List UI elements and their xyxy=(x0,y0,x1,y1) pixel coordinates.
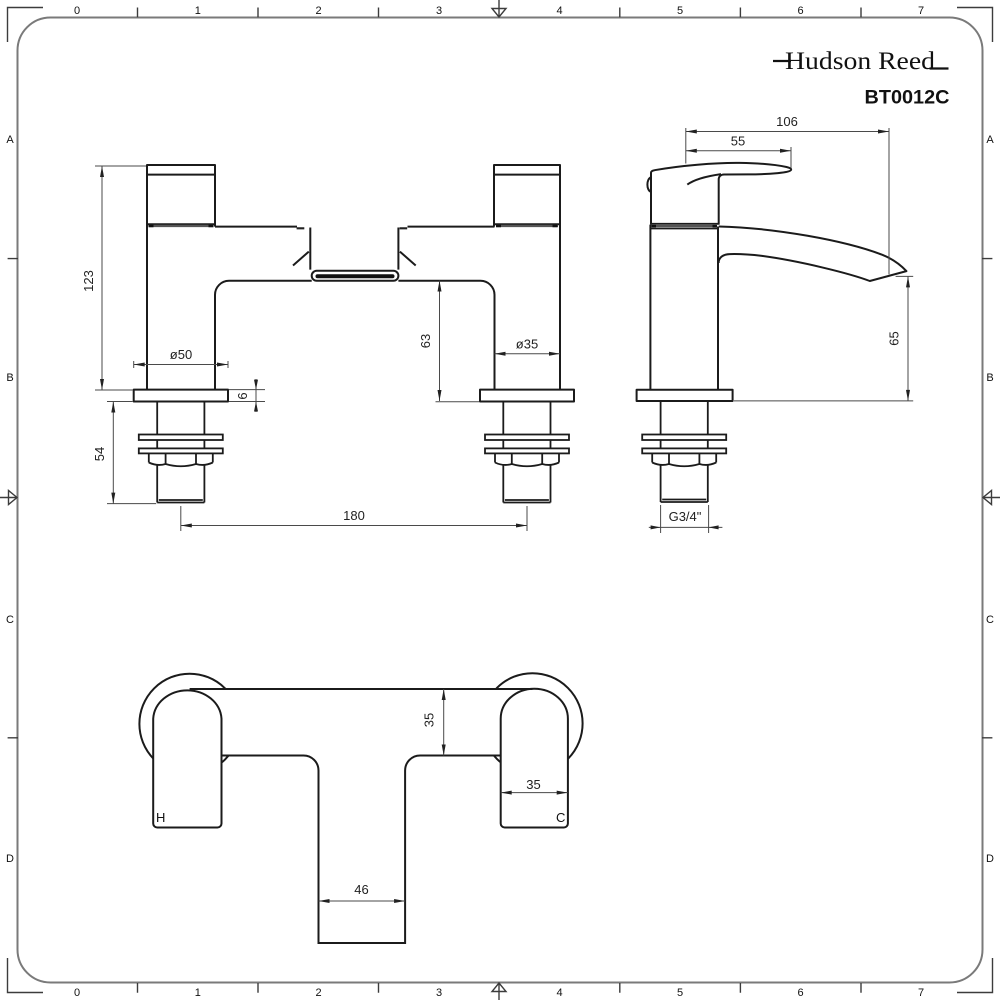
svg-text:123: 123 xyxy=(81,270,96,292)
svg-text:2: 2 xyxy=(315,5,321,17)
svg-text:C: C xyxy=(556,810,565,825)
svg-text:A: A xyxy=(6,134,14,146)
svg-text:B: B xyxy=(6,372,13,384)
svg-text:H: H xyxy=(156,810,165,825)
svg-text:0: 0 xyxy=(74,987,80,999)
svg-text:55: 55 xyxy=(731,134,745,149)
svg-text:D: D xyxy=(986,853,994,865)
svg-text:3: 3 xyxy=(436,5,442,17)
svg-text:Hudson Reed: Hudson Reed xyxy=(785,48,936,75)
svg-text:1: 1 xyxy=(195,5,201,17)
svg-text:106: 106 xyxy=(776,114,798,129)
svg-text:63: 63 xyxy=(418,334,433,348)
svg-text:D: D xyxy=(6,853,14,865)
svg-text:0: 0 xyxy=(74,5,80,17)
svg-text:A: A xyxy=(986,134,994,146)
svg-text:1: 1 xyxy=(195,987,201,999)
svg-text:B: B xyxy=(986,372,993,384)
svg-text:6: 6 xyxy=(235,392,250,399)
svg-text:46: 46 xyxy=(354,882,368,897)
svg-text:C: C xyxy=(986,614,994,626)
svg-text:4: 4 xyxy=(556,5,562,17)
svg-text:35: 35 xyxy=(526,777,540,792)
svg-text:180: 180 xyxy=(343,508,365,523)
svg-text:35: 35 xyxy=(422,713,437,727)
svg-text:2: 2 xyxy=(315,987,321,999)
svg-text:7: 7 xyxy=(918,5,924,17)
svg-text:65: 65 xyxy=(887,331,902,345)
svg-text:4: 4 xyxy=(556,987,562,999)
svg-text:G3/4": G3/4" xyxy=(669,509,702,524)
svg-text:6: 6 xyxy=(797,5,803,17)
svg-text:BT0012C: BT0012C xyxy=(865,88,950,109)
svg-text:54: 54 xyxy=(92,447,107,461)
svg-text:5: 5 xyxy=(677,987,683,999)
svg-text:5: 5 xyxy=(677,5,683,17)
svg-text:6: 6 xyxy=(797,987,803,999)
svg-text:C: C xyxy=(6,614,14,626)
svg-text:ø50: ø50 xyxy=(170,347,192,362)
svg-text:3: 3 xyxy=(436,987,442,999)
svg-text:7: 7 xyxy=(918,987,924,999)
svg-text:ø35: ø35 xyxy=(516,337,538,352)
